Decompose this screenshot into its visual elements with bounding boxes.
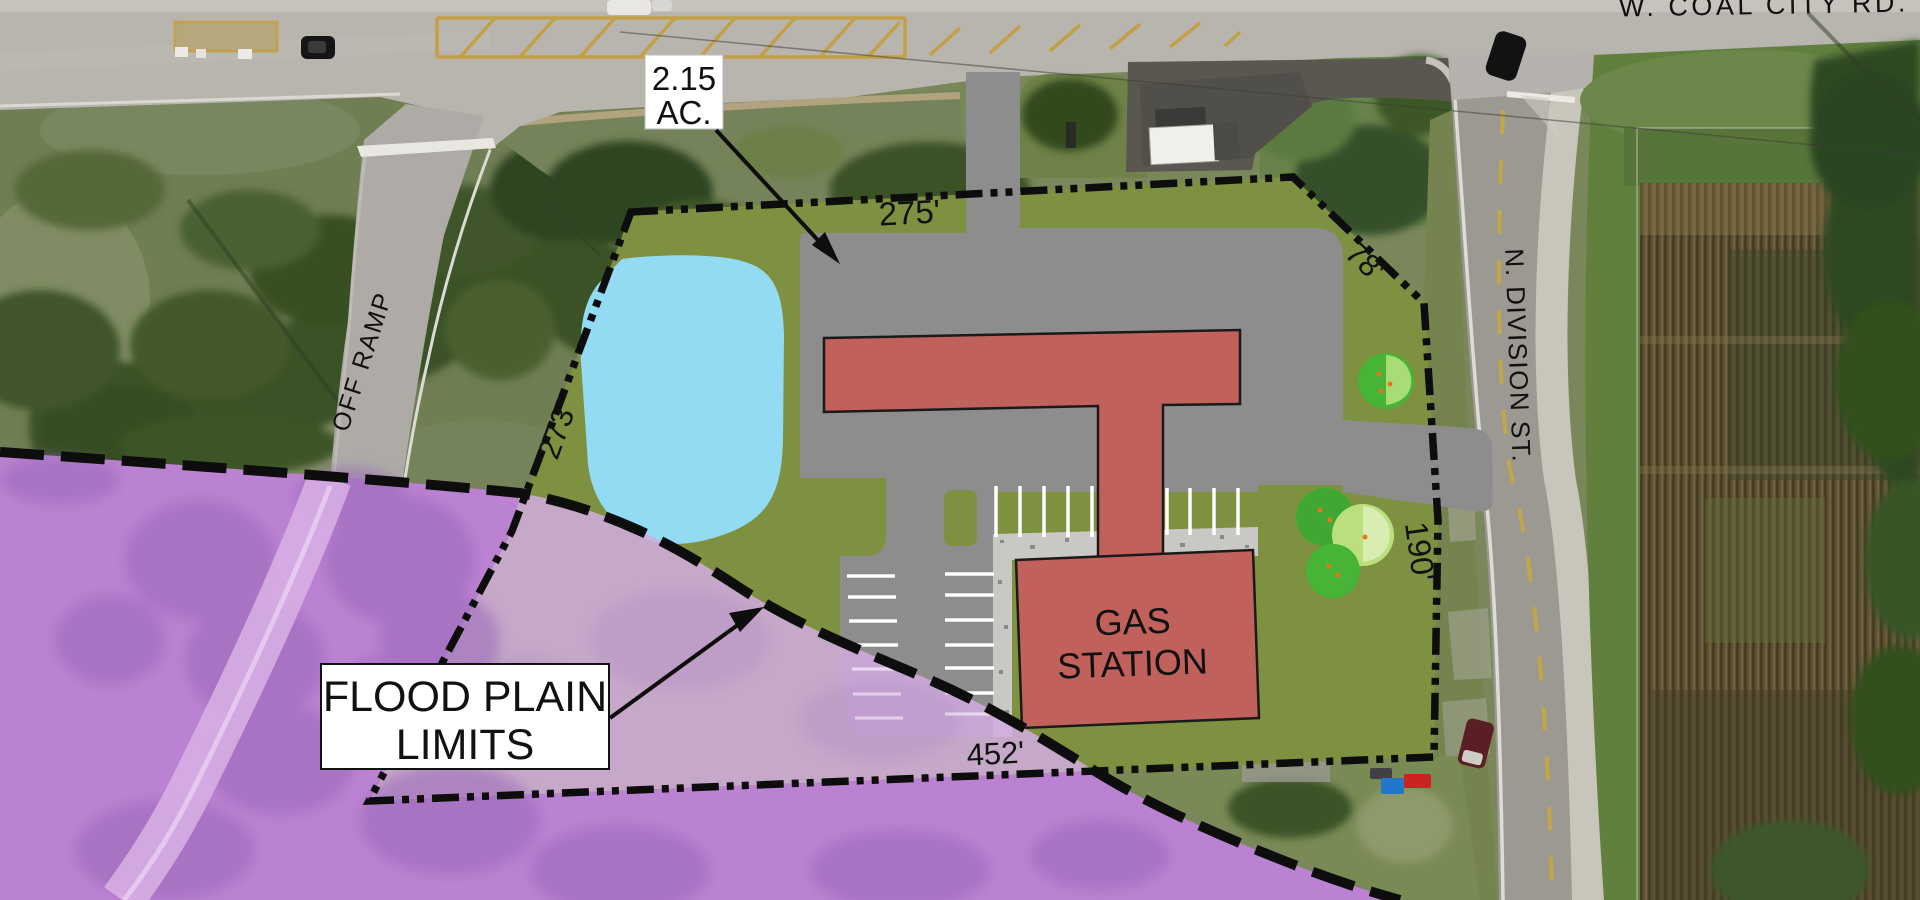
svg-text:LIMITS: LIMITS <box>396 721 535 769</box>
svg-text:275': 275' <box>878 192 941 232</box>
svg-text:GAS: GAS <box>1094 600 1171 644</box>
svg-text:FLOOD PLAIN: FLOOD PLAIN <box>323 673 607 721</box>
svg-text:STATION: STATION <box>1057 640 1209 686</box>
svg-text:2.15: 2.15 <box>652 60 716 97</box>
svg-text:452': 452' <box>966 735 1025 773</box>
svg-text:AC.: AC. <box>656 94 711 131</box>
